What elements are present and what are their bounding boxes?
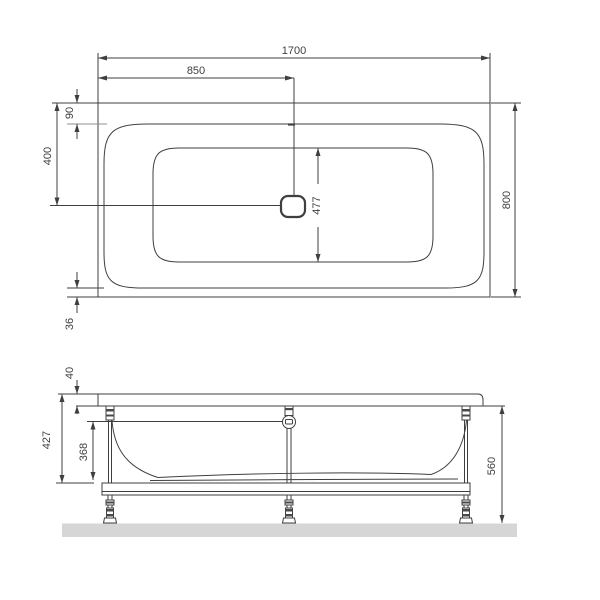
dim-body-height: 427: [41, 394, 94, 483]
dim-width-total: 800: [491, 103, 521, 297]
front-view: 40 427 368 560: [41, 367, 517, 537]
dim-body-height-label: 427: [41, 431, 53, 449]
bathtub-technical-drawing: 1700 850 90 400: [0, 0, 600, 600]
dim-basin-width: 477: [309, 148, 325, 262]
frame-leg-center: [283, 406, 296, 483]
dim-length-total-label: 1700: [282, 45, 306, 57]
drawing-canvas: 1700 850 90 400: [0, 0, 600, 600]
dim-width-total-label: 800: [501, 191, 513, 209]
dim-rim-thickness: 40: [64, 367, 80, 414]
dim-basin-width-label: 477: [311, 196, 323, 214]
frame-leg-left: [106, 406, 115, 483]
tub-shell-profile: [112, 421, 467, 481]
top-view: 1700 850 90 400: [42, 45, 521, 330]
floor-band: [62, 524, 517, 538]
dim-length-to-drain: 850: [98, 65, 294, 196]
dim-height-total-label: 560: [486, 457, 498, 475]
dim-rim-front-offset-label: 90: [64, 107, 76, 119]
adjustable-feet: [104, 495, 473, 523]
dim-height-total: 560: [486, 406, 505, 523]
drain-outline: [281, 196, 305, 217]
frame-leg-right: [462, 406, 471, 483]
rim-slab: [58, 394, 505, 406]
frame-rail: [102, 483, 470, 495]
dim-rim-front-offset: 90: [52, 89, 107, 139]
dim-rim-back-offset-label: 36: [64, 318, 76, 330]
dim-length-to-drain-label: 850: [187, 65, 205, 77]
dim-basin-depth-label: 368: [78, 443, 90, 461]
dim-rim-thickness-label: 40: [64, 367, 76, 379]
dim-drain-offset-label: 400: [42, 147, 54, 165]
drain-fitting: [283, 416, 296, 429]
dim-drain-offset: 400: [42, 103, 281, 206]
